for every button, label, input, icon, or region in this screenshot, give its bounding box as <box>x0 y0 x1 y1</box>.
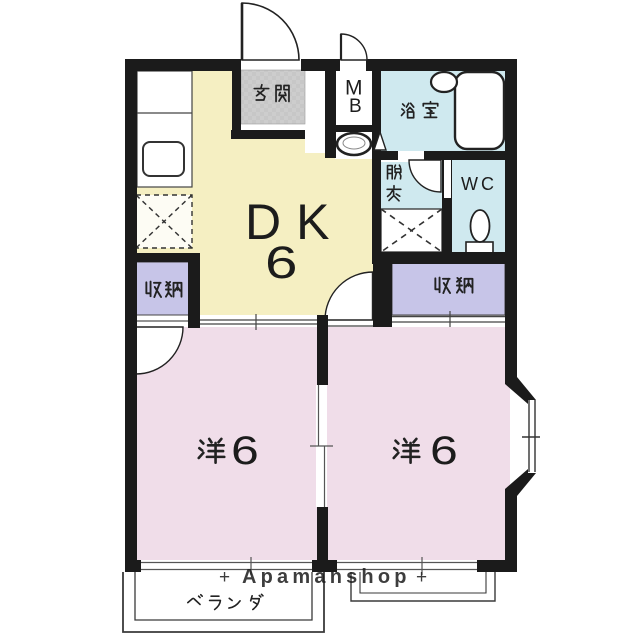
svg-text:+: + <box>416 567 427 588</box>
svg-text:6: 6 <box>265 238 298 288</box>
svg-text:WC: WC <box>461 174 497 194</box>
svg-text:+: + <box>219 567 230 588</box>
svg-text:6: 6 <box>430 428 458 473</box>
svg-text:6: 6 <box>231 428 259 473</box>
svg-text:Apamanshop: Apamanshop <box>242 566 411 588</box>
svg-text:B: B <box>349 96 362 117</box>
